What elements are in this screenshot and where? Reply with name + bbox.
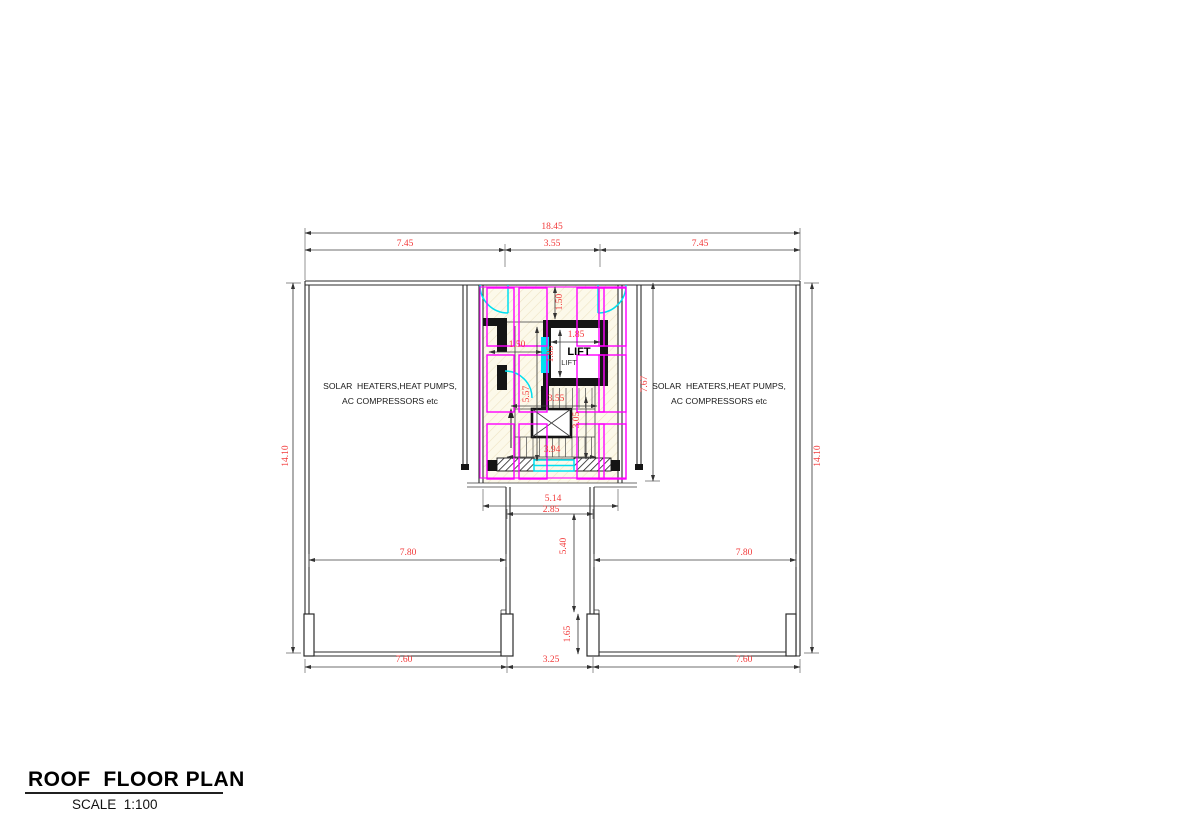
dim-top-left: 7.45: [397, 239, 414, 249]
core-bottom-corner-right: [611, 460, 620, 471]
dim-lift-width: 1.85: [568, 330, 585, 340]
top-wall: [305, 281, 800, 285]
dim-tower-inner-width: 2.85: [543, 505, 560, 515]
dim-flight-depth: 3.05: [572, 411, 582, 428]
dim-stair-total-width: 3.94: [544, 445, 561, 455]
dim-top-total: 18.45: [541, 222, 563, 232]
pier-tower-left: [501, 614, 513, 656]
drawing-title: ROOF FLOOR PLAN: [28, 768, 245, 791]
dim-pier-height: 1.65: [563, 625, 573, 642]
stair-hall-top-wall: [483, 318, 497, 326]
core-bottom-wall-hatched-right: [574, 458, 611, 471]
left-area-label-line1: SOLAR HEATERS,HEAT PUMPS,: [323, 381, 457, 391]
dim-stair-hall-depth: 5.57: [522, 385, 532, 402]
left-area-label-line2: AC COMPRESSORS etc: [342, 396, 439, 406]
roof-floor-plan-canvas: 18.45 7.45 3.55 7.45 14.10 14.10 7.67 1.…: [0, 0, 1200, 837]
tower-wall-step: [501, 610, 599, 614]
right-wall: [796, 281, 800, 656]
lift-label: LIFT: [567, 346, 590, 358]
lift-sublabel: LIFT: [561, 358, 577, 367]
dim-bottom-right: 7.60: [736, 655, 753, 665]
bottom-wall-right-wing: [587, 652, 800, 656]
dim-hall-width: 1.50: [509, 340, 526, 350]
dim-tower-height: 5.40: [559, 537, 569, 554]
drawing-scale: SCALE 1:100: [72, 797, 158, 812]
left-parapet: [463, 285, 467, 468]
stair-hall-left-wall-upper: [497, 318, 507, 352]
dim-lift-depth: 1.85: [546, 345, 556, 362]
pier-tower-right: [587, 614, 599, 656]
dim-core-height: 7.67: [640, 375, 650, 392]
stair-hall-left-wall-lower: [497, 365, 507, 390]
title-block: ROOF FLOOR PLAN SCALE 1:100: [25, 768, 245, 812]
right-parapet-cap: [635, 464, 643, 470]
core-bottom-wall-hatched-left: [497, 458, 534, 471]
dim-bottom-center: 3.25: [543, 655, 560, 665]
dim-terrace-left: 7.80: [400, 548, 417, 558]
dim-top-mid: 3.55: [544, 239, 561, 249]
pier-left-corner: [304, 614, 314, 656]
pier-right-corner: [786, 614, 796, 656]
dim-bottom-left: 7.60: [396, 655, 413, 665]
core-bottom-corner-left: [487, 460, 497, 471]
dim-core-top-setback: 1.50: [555, 293, 565, 310]
dim-stair-width: 3.55: [548, 394, 565, 404]
right-area-label-line2: AC COMPRESSORS etc: [671, 396, 768, 406]
dim-top-right: 7.45: [692, 239, 709, 249]
core-right-wall: [618, 285, 622, 483]
dim-terrace-right: 7.80: [736, 548, 753, 558]
dim-right-height: 14.10: [813, 445, 823, 467]
right-area-label-line1: SOLAR HEATERS,HEAT PUMPS,: [652, 381, 786, 391]
core-bottom-edge: [467, 483, 637, 487]
dim-left-height: 14.10: [281, 445, 291, 467]
left-wall: [305, 281, 309, 656]
dim-core-width: 5.14: [545, 494, 562, 504]
left-parapet-cap: [461, 464, 469, 470]
